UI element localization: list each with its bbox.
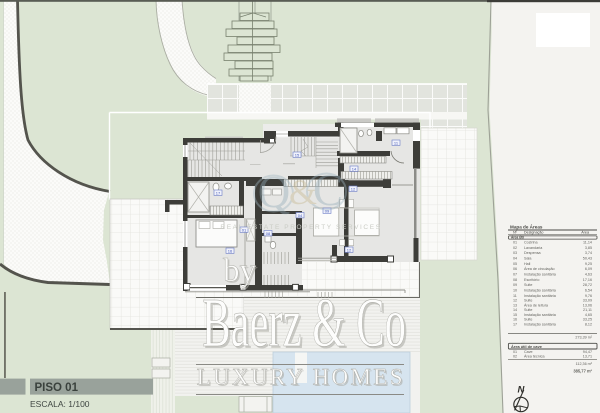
svg-text:Despensa: Despensa [524,251,542,255]
svg-text:13,71: 13,71 [583,355,592,359]
svg-text:PISO 01: PISO 01 [35,382,79,394]
svg-text:02: 02 [513,246,517,250]
svg-text:Designação: Designação [524,230,543,234]
svg-text:Área: Área [581,230,590,234]
svg-text:4,65: 4,65 [585,313,592,317]
svg-text:17: 17 [216,190,221,195]
svg-text:Área técnica: Área técnica [524,355,545,359]
svg-text:11,14: 11,14 [583,240,592,244]
svg-text:11: 11 [513,294,517,298]
svg-text:05: 05 [513,262,517,266]
svg-text:12: 12 [513,299,517,303]
svg-text:Cave: Cave [524,350,533,354]
svg-text:03: 03 [513,251,517,255]
svg-text:33,25: 33,25 [583,318,592,322]
svg-text:Suite: Suite [524,308,532,312]
svg-text:50,43: 50,43 [583,256,592,260]
svg-text:3,74: 3,74 [585,251,592,255]
svg-text:3,85: 3,85 [585,246,592,250]
svg-text:08: 08 [513,278,517,282]
svg-text:01: 01 [513,350,517,354]
svg-text:9,76: 9,76 [585,294,592,298]
svg-text:Suite: Suite [524,318,532,322]
svg-text:Instalação sanitária: Instalação sanitária [524,273,557,277]
svg-text:Área útil de cave: Área útil de cave [511,344,543,349]
svg-text:15: 15 [513,313,517,317]
svg-text:by: by [223,253,257,289]
svg-text:07: 07 [513,273,517,277]
svg-text:385,77 m²: 385,77 m² [573,369,592,374]
svg-text:94,47: 94,47 [583,350,592,354]
svg-text:28,72: 28,72 [583,283,592,287]
svg-text:Suite: Suite [524,299,532,303]
svg-text:Cozinha: Cozinha [524,240,538,244]
svg-text:Mapa de Áreas: Mapa de Áreas [510,223,543,229]
svg-text:08: 08 [266,231,271,236]
svg-text:01: 01 [513,240,517,244]
svg-text:4,63: 4,63 [585,273,592,277]
svg-text:Q: Q [258,167,291,217]
svg-text:13,06: 13,06 [583,303,592,307]
svg-text:Instalação sanitária: Instalação sanitária [524,313,557,317]
svg-text:Instalação sanitária: Instalação sanitária [524,289,557,293]
svg-text:REAL ESTATE PROPERTY SERVICES: REAL ESTATE PROPERTY SERVICES [220,224,381,231]
svg-text:Escritório: Escritório [524,278,539,282]
svg-text:12: 12 [351,186,356,191]
svg-text:6,09: 6,09 [585,267,592,271]
svg-text:04: 04 [513,256,517,260]
svg-text:12: 12 [347,247,352,252]
svg-text:Lavandaria: Lavandaria [524,246,543,250]
svg-text:273,39 m²: 273,39 m² [575,336,592,340]
svg-text:04: 04 [298,213,303,218]
svg-text:17,16: 17,16 [583,278,592,282]
svg-text:Suite: Suite [524,283,532,287]
svg-text:C: C [313,165,343,215]
svg-text:10: 10 [513,289,517,293]
svg-text:Área Útil: Área Útil [511,235,524,240]
svg-text:16: 16 [513,318,517,322]
svg-text:ESCALA: 1/100: ESCALA: 1/100 [30,399,90,409]
svg-text:Área de circulação: Área de circulação [524,267,555,271]
svg-text:112,36 m²: 112,36 m² [576,362,593,366]
svg-text:LUXURY HOMES: LUXURY HOMES [197,365,409,390]
svg-text:Nº: Nº [513,230,518,234]
svg-text:Área de leitura: Área de leitura [524,303,549,307]
svg-text:Instalação sanitária: Instalação sanitária [524,322,557,326]
svg-text:Baerz & Co: Baerz & Co [202,285,406,362]
svg-text:Hall: Hall [524,262,531,266]
svg-text:13: 13 [513,303,517,307]
svg-text:Instalação sanitária: Instalação sanitária [524,294,557,298]
svg-text:06: 06 [513,267,517,271]
svg-text:8,12: 8,12 [585,322,592,326]
svg-text:33,09: 33,09 [583,299,592,303]
svg-text:Sala: Sala [524,256,532,260]
svg-text:17: 17 [513,322,517,326]
svg-text:14: 14 [352,166,357,171]
svg-text:14: 14 [513,308,517,312]
svg-text:09: 09 [513,283,517,287]
svg-text:21,11: 21,11 [583,308,592,312]
svg-text:6,54: 6,54 [585,289,592,293]
svg-text:02: 02 [513,355,517,359]
svg-text:15: 15 [295,152,300,157]
svg-text:9,25: 9,25 [585,262,592,266]
